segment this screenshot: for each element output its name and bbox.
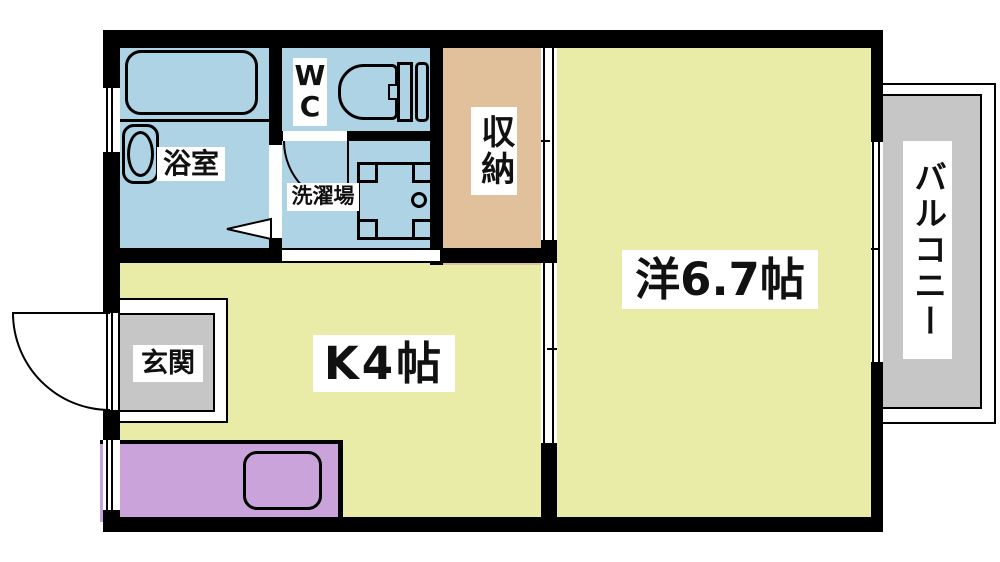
laundry-sliding-door	[282, 250, 440, 261]
window-line	[878, 142, 880, 362]
kitchen-sink-icon	[243, 451, 322, 510]
kitchen-label: K4帖	[313, 335, 455, 392]
window-meet-tick	[871, 248, 878, 250]
window-line	[106, 440, 108, 510]
laundry-label: 洗濯場	[287, 183, 359, 211]
bathroom-divider-line	[120, 119, 270, 122]
door-line	[543, 263, 545, 443]
pan-drain-icon	[411, 192, 427, 208]
toilet-flush-icon	[388, 84, 399, 100]
door-line	[552, 263, 554, 443]
entrance-label: 玄関	[133, 345, 203, 382]
entrance-door-swing-arc	[12, 313, 110, 411]
window-line	[111, 440, 113, 510]
window-line	[111, 88, 113, 152]
door-line	[543, 48, 545, 240]
wall-wc-storage	[430, 48, 443, 265]
wash-basin-icon	[127, 131, 154, 177]
pan-corner-icon	[357, 219, 378, 240]
wall-bottom	[103, 517, 883, 532]
pan-corner-icon	[357, 162, 378, 183]
bathroom-label: 浴室	[157, 147, 225, 181]
balcony-label: バルコニー	[903, 141, 952, 359]
wc-label: W C	[293, 58, 327, 126]
western-room-label: 洋6.7帖	[622, 250, 818, 309]
entrance-door-leaf	[12, 312, 110, 314]
door-line	[552, 48, 554, 240]
bathroom-folding-door-icon	[226, 217, 273, 242]
bathtub-icon	[125, 50, 258, 115]
door-meet-tick	[541, 140, 550, 142]
floor-plan: 浴室 W C 洗濯場 収納 洋6.7帖 K4帖 玄関 バルコニー	[0, 0, 1000, 562]
wc-label-line: W	[295, 61, 326, 92]
wc-door-opening	[283, 131, 347, 141]
wall-top	[103, 30, 883, 48]
wc-label-line: C	[300, 92, 321, 123]
door-frame-line	[111, 313, 113, 410]
storage-label: 収納	[471, 107, 517, 195]
window-line	[872, 142, 874, 362]
window-line	[106, 88, 108, 152]
door-meet-tick	[547, 348, 557, 350]
toilet-tank-icon	[397, 62, 413, 122]
toilet-cistern-icon	[415, 62, 429, 122]
